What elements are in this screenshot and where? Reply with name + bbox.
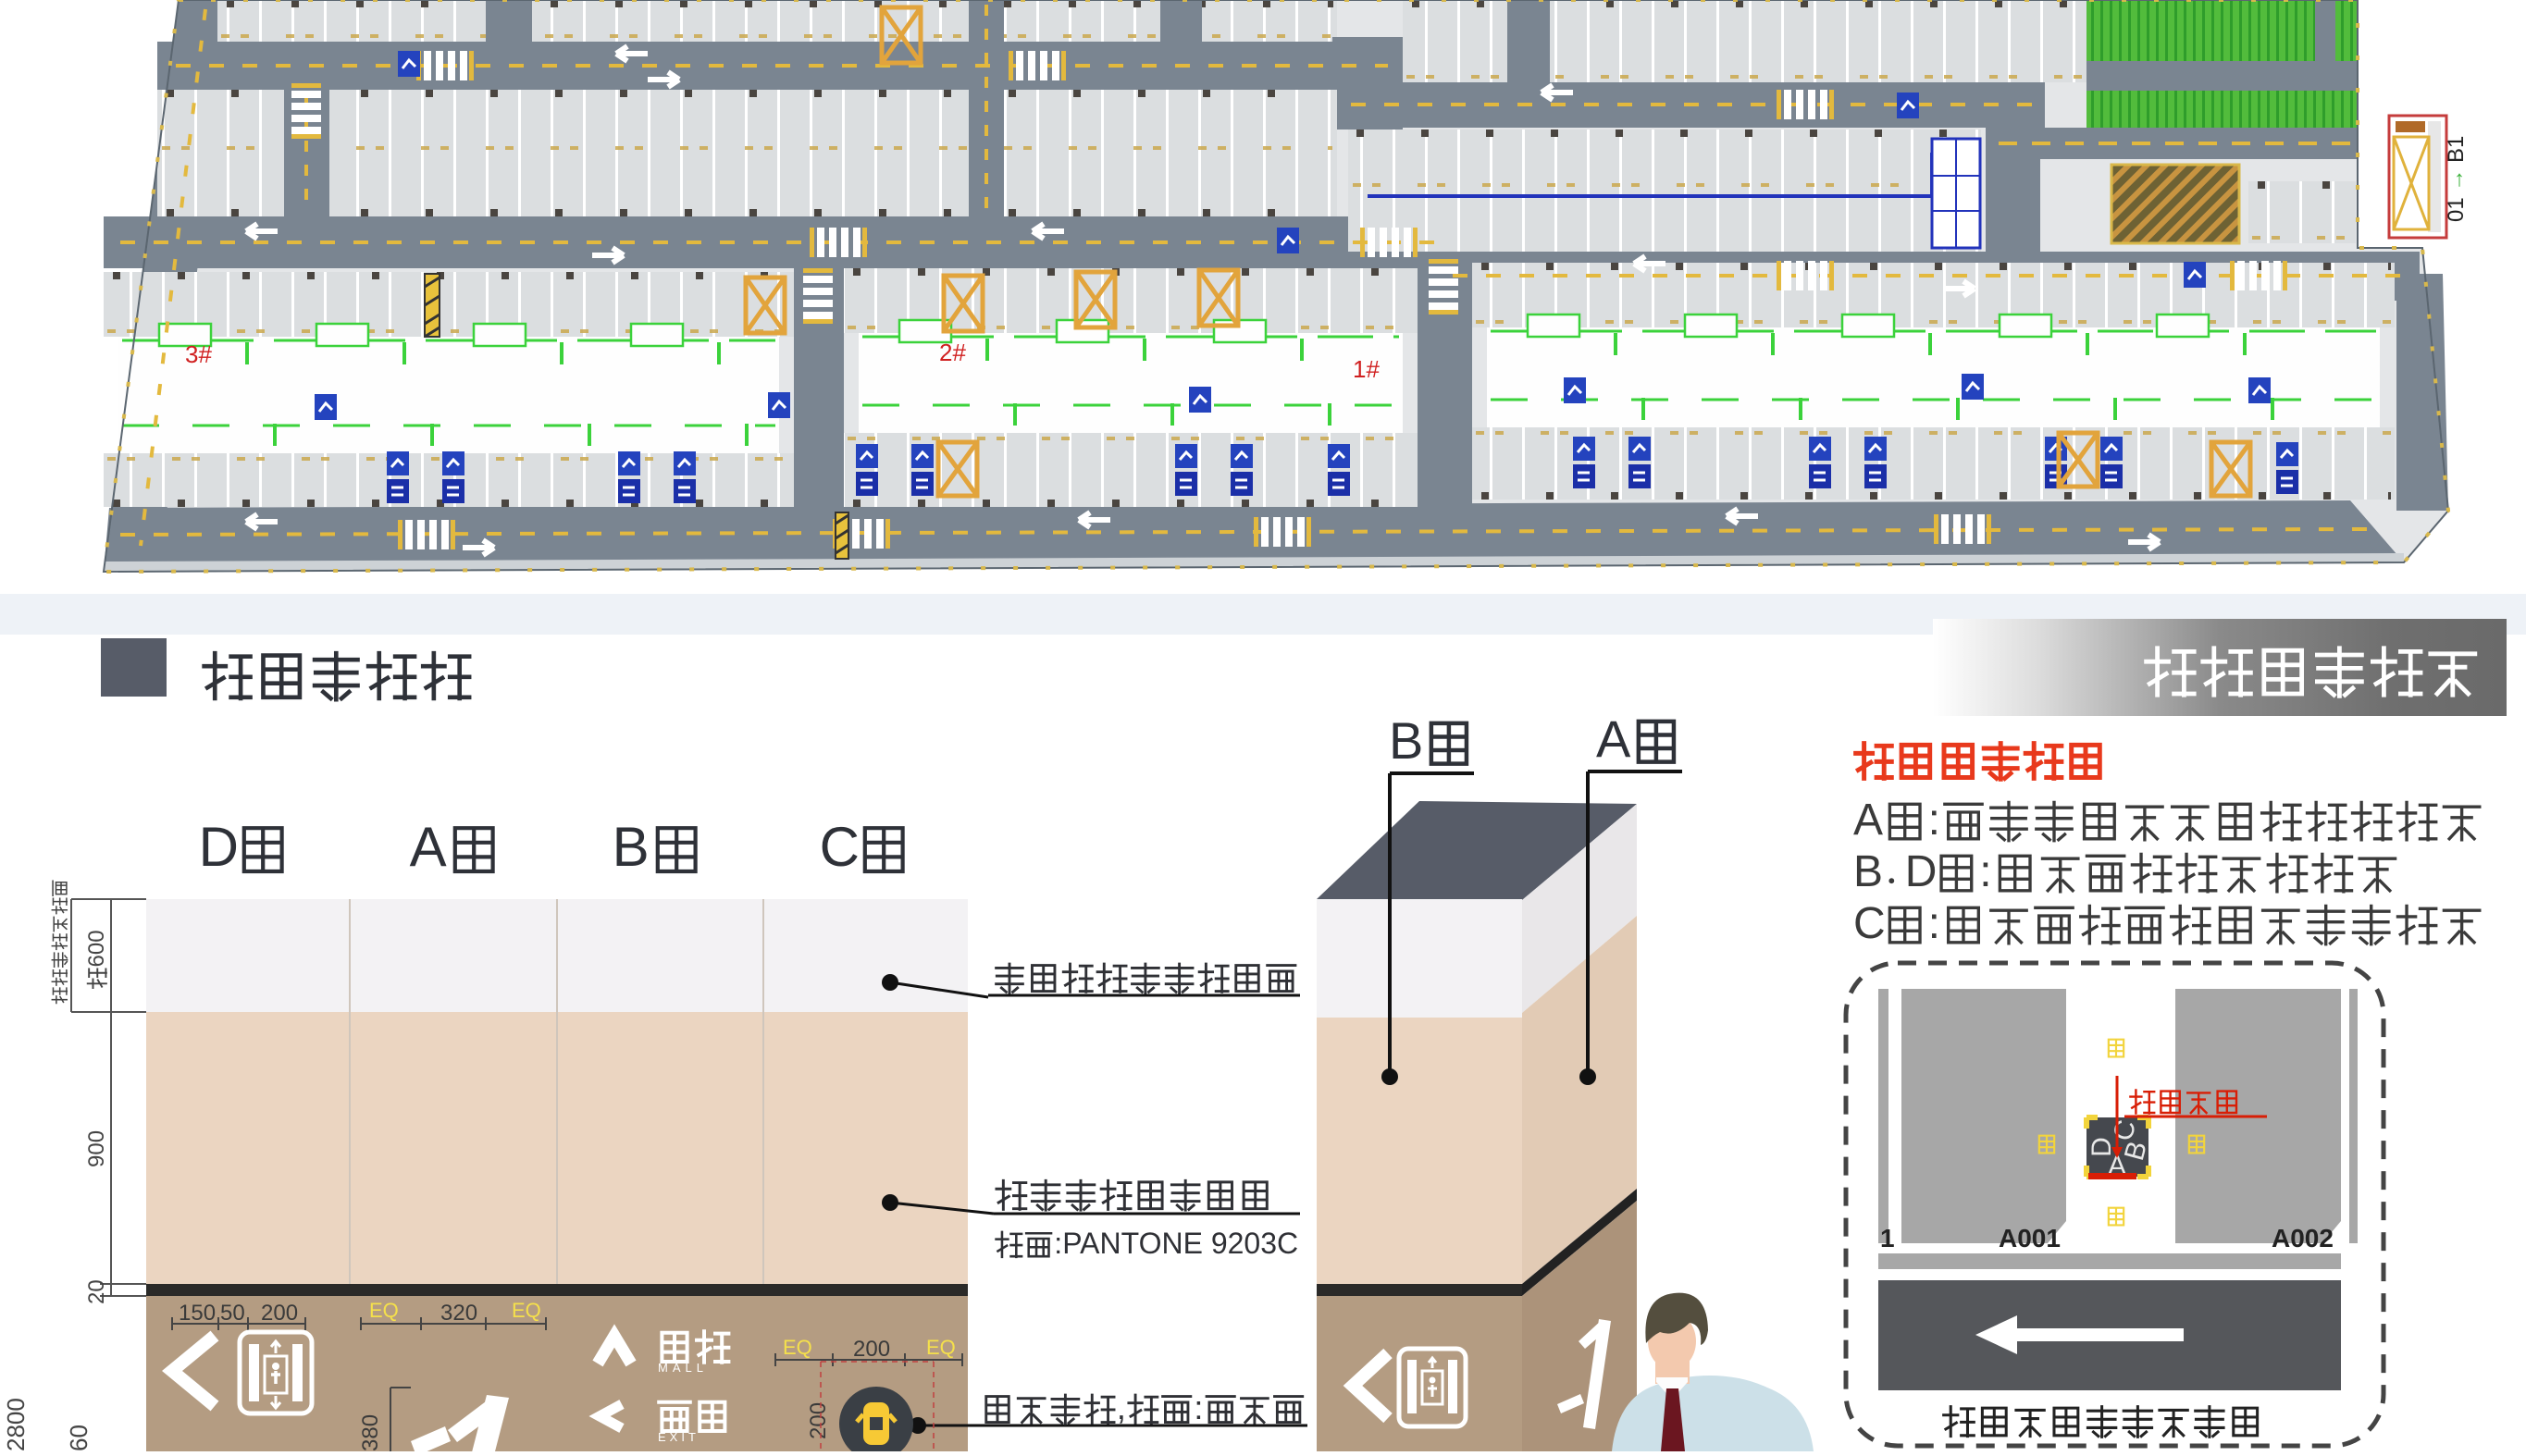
svg-text:900: 900 xyxy=(84,1130,109,1167)
svg-text:EQ: EQ xyxy=(783,1336,812,1359)
svg-text:C: C xyxy=(820,816,860,878)
svg-text:200: 200 xyxy=(806,1402,831,1439)
svg-text:D: D xyxy=(1905,847,1938,896)
svg-text:20: 20 xyxy=(84,1279,109,1304)
svg-text:B: B xyxy=(1389,711,1423,770)
svg-text:380: 380 xyxy=(358,1414,383,1451)
svg-text:C: C xyxy=(1853,899,1886,948)
svg-text:01 → B1: 01 → B1 xyxy=(2444,136,2469,222)
svg-text:1: 1 xyxy=(1880,1224,1895,1252)
svg-text:2800: 2800 xyxy=(2,1398,30,1451)
svg-text:1#: 1# xyxy=(1353,355,1380,383)
svg-text:EQ: EQ xyxy=(369,1299,399,1322)
svg-text:A002: A002 xyxy=(2272,1224,2334,1252)
svg-text:200: 200 xyxy=(261,1301,298,1326)
svg-text:EXIT: EXIT xyxy=(658,1430,700,1444)
svg-text:EQ: EQ xyxy=(926,1336,956,1359)
svg-text:A: A xyxy=(410,816,447,878)
svg-text:150: 150 xyxy=(179,1301,216,1326)
svg-text:320: 320 xyxy=(440,1301,477,1326)
svg-text::: : xyxy=(1928,796,1940,845)
svg-text:D: D xyxy=(199,816,239,878)
svg-text::: : xyxy=(1928,899,1940,948)
svg-text:60: 60 xyxy=(65,1425,93,1451)
svg-text::: : xyxy=(1979,847,1991,896)
svg-text:MALL: MALL xyxy=(658,1361,708,1375)
svg-text:,: , xyxy=(1117,1388,1126,1426)
svg-text:3#: 3# xyxy=(185,340,212,368)
svg-text:B: B xyxy=(613,816,650,878)
svg-text:A001: A001 xyxy=(1999,1224,2061,1252)
svg-text:2#: 2# xyxy=(939,339,966,366)
svg-text:600: 600 xyxy=(84,930,109,967)
svg-text:200: 200 xyxy=(853,1337,890,1362)
svg-text:EQ: EQ xyxy=(512,1299,541,1322)
svg-text:A: A xyxy=(1853,796,1883,845)
svg-text:A: A xyxy=(1596,709,1631,768)
svg-text:B: B xyxy=(1853,847,1883,896)
svg-text::PANTONE 9203C: :PANTONE 9203C xyxy=(1054,1227,1298,1260)
svg-text::: : xyxy=(1194,1388,1203,1426)
svg-text:50: 50 xyxy=(220,1301,245,1326)
